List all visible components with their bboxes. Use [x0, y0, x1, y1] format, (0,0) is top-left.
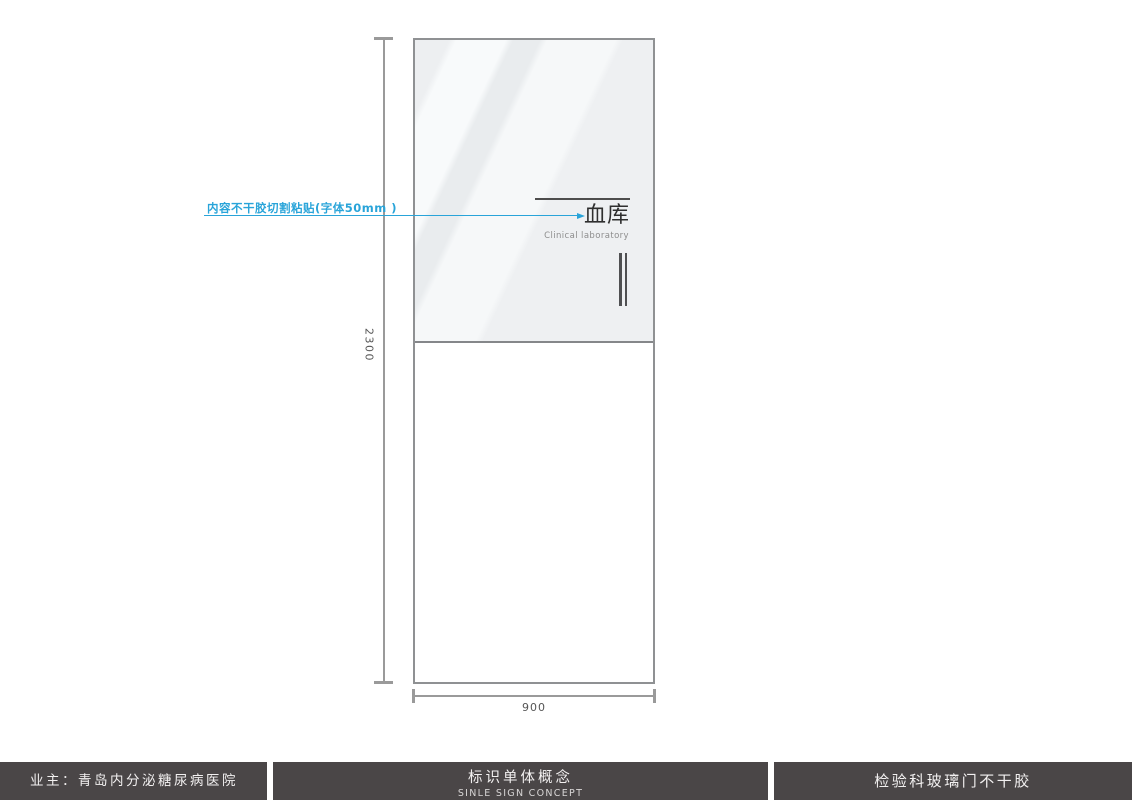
title-block: 业主：青岛内分泌糖尿病医院 标识单体概念 SINLE SIGN CONCEPT …	[0, 762, 1132, 800]
sign-title-cn: 血库	[584, 204, 630, 228]
owner-label: 业主：青岛内分泌糖尿病医院	[0, 762, 267, 800]
height-dimension-label: 2300	[363, 328, 376, 362]
width-dimension-label: 900	[413, 701, 655, 714]
dimension-tick-top	[374, 37, 393, 40]
item-title: 检验科玻璃门不干胶	[774, 762, 1132, 800]
leader-arrow-icon	[577, 213, 585, 219]
door-outline: 血库 Clinical laboratory	[413, 38, 655, 684]
sheet-title: 标识单体概念	[273, 766, 768, 787]
title-block-item-cell: 检验科玻璃门不干胶	[774, 762, 1132, 800]
title-block-center-cell: 标识单体概念 SINLE SIGN CONCEPT	[273, 762, 768, 800]
drawing-canvas: 血库 Clinical laboratory 2300 900 内容不干胶切割粘…	[0, 0, 1132, 800]
title-block-owner-cell: 业主：青岛内分泌糖尿病医院	[0, 762, 267, 800]
leader-line	[204, 215, 578, 216]
dimension-tick-bottom	[374, 681, 393, 684]
glass-panel: 血库 Clinical laboratory	[415, 40, 653, 343]
door-handle-lines	[619, 253, 627, 306]
sheet-subtitle: SINLE SIGN CONCEPT	[273, 788, 768, 799]
callout-label: 内容不干胶切割粘贴(字体50mm )	[207, 200, 397, 216]
sign-rule-line	[535, 198, 630, 200]
vertical-dimension-line	[383, 38, 385, 683]
handle-line	[625, 253, 628, 306]
handle-line	[619, 253, 622, 306]
sign-subtitle-en: Clinical laboratory	[544, 231, 629, 241]
horizontal-dimension-line	[413, 695, 655, 697]
